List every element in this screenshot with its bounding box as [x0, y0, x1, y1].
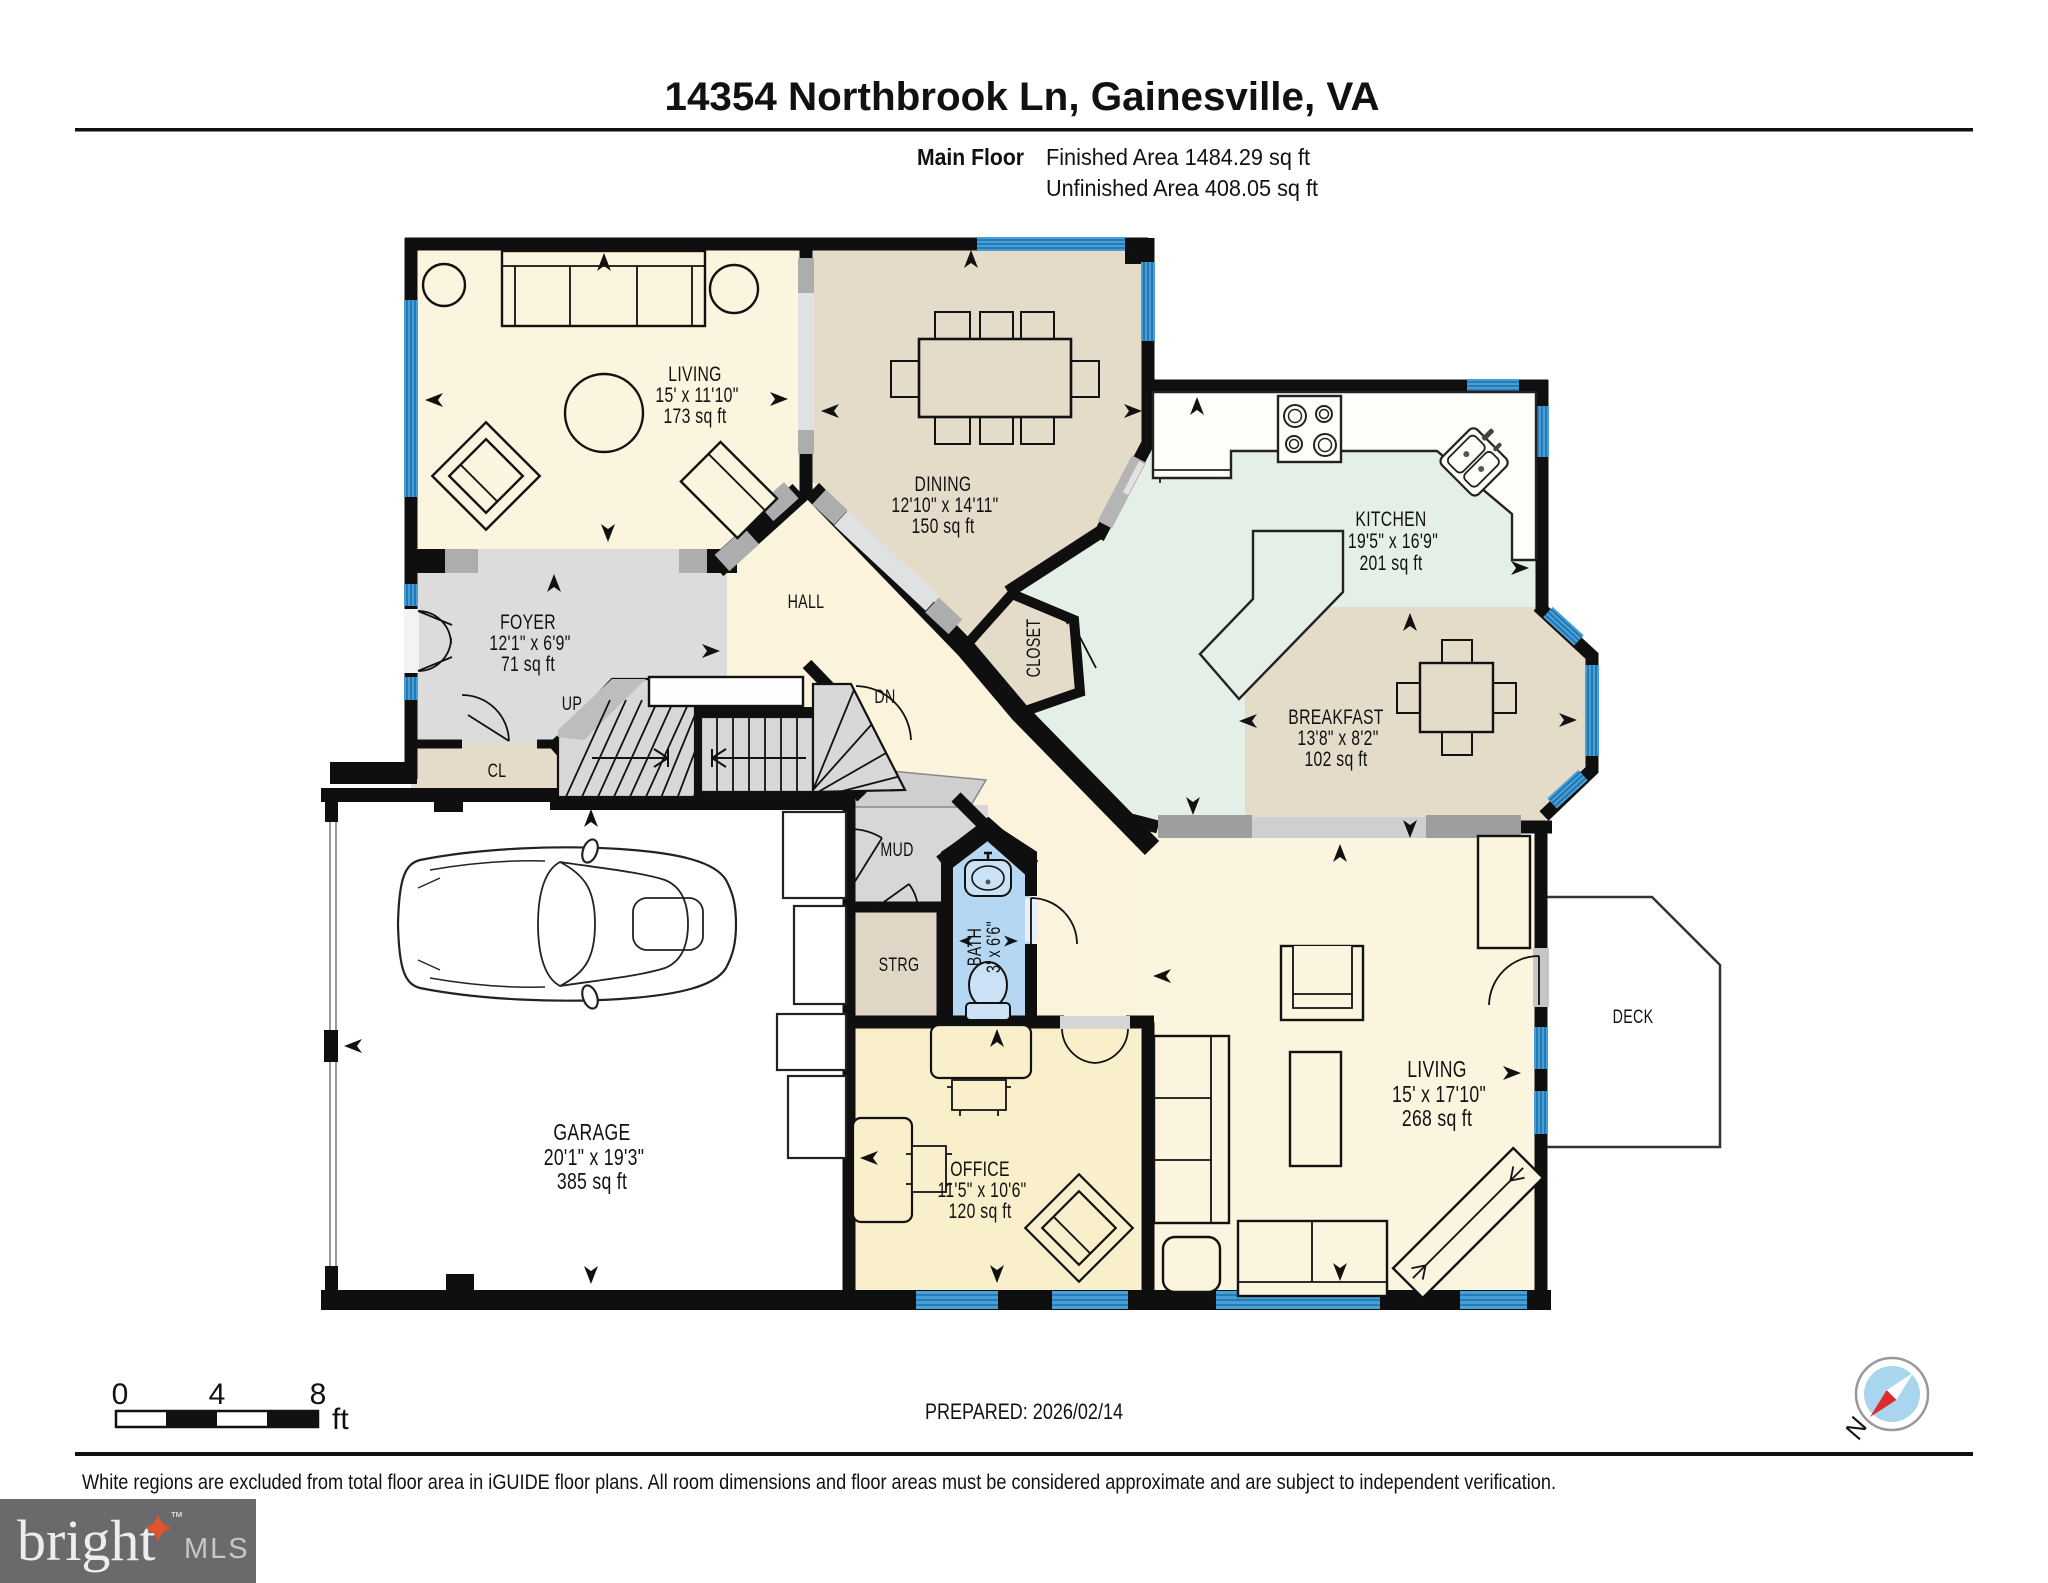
svg-text:15' x 17'10": 15' x 17'10"	[1392, 1082, 1486, 1108]
svg-text:LIVING: LIVING	[1407, 1057, 1467, 1083]
svg-text:bright: bright	[17, 1508, 156, 1573]
svg-text:8: 8	[310, 1378, 327, 1411]
svg-text:4: 4	[209, 1378, 226, 1411]
svg-text:173 sq ft: 173 sq ft	[663, 404, 726, 428]
svg-text:CL: CL	[488, 760, 507, 781]
svg-text:120 sq ft: 120 sq ft	[948, 1199, 1011, 1223]
svg-text:MUD: MUD	[880, 839, 913, 860]
svg-text:UP: UP	[562, 693, 582, 714]
svg-text:Main Floor: Main Floor	[917, 144, 1024, 170]
svg-text:Finished Area 1484.29 sq ft: Finished Area 1484.29 sq ft	[1046, 144, 1311, 170]
svg-text:14354 Northbrook Ln, Gainesvil: 14354 Northbrook Ln, Gainesville, VA	[665, 75, 1380, 119]
svg-text:Unfinished Area 408.05 sq ft: Unfinished Area 408.05 sq ft	[1046, 175, 1319, 201]
svg-text:DECK: DECK	[1613, 1006, 1654, 1027]
svg-text:HALL: HALL	[788, 591, 825, 612]
svg-text:GARAGE: GARAGE	[553, 1120, 630, 1146]
svg-text:White regions are excluded fro: White regions are excluded from total fl…	[82, 1471, 1556, 1494]
svg-text:19'5" x 16'9": 19'5" x 16'9"	[1348, 529, 1438, 553]
svg-text:™: ™	[170, 1509, 183, 1524]
svg-text:268 sq ft: 268 sq ft	[1402, 1106, 1472, 1132]
svg-text:MLS: MLS	[184, 1533, 250, 1565]
svg-text:0: 0	[112, 1378, 129, 1411]
svg-text:201 sq ft: 201 sq ft	[1359, 551, 1422, 575]
svg-text:71 sq ft: 71 sq ft	[501, 652, 555, 676]
svg-text:DN: DN	[874, 686, 895, 707]
svg-text:102 sq ft: 102 sq ft	[1304, 747, 1367, 771]
svg-text:PREPARED: 2026/02/14: PREPARED: 2026/02/14	[925, 1399, 1123, 1424]
svg-text:CLOSET: CLOSET	[1023, 619, 1044, 678]
svg-text:20'1" x 19'3": 20'1" x 19'3"	[544, 1145, 645, 1171]
svg-text:STRG: STRG	[879, 954, 920, 975]
svg-text:KITCHEN: KITCHEN	[1355, 507, 1426, 531]
svg-text:3' x 6'6": 3' x 6'6"	[983, 921, 1004, 973]
svg-text:ft: ft	[332, 1403, 349, 1436]
svg-text:385 sq ft: 385 sq ft	[557, 1169, 627, 1195]
svg-text:150 sq ft: 150 sq ft	[911, 514, 974, 538]
